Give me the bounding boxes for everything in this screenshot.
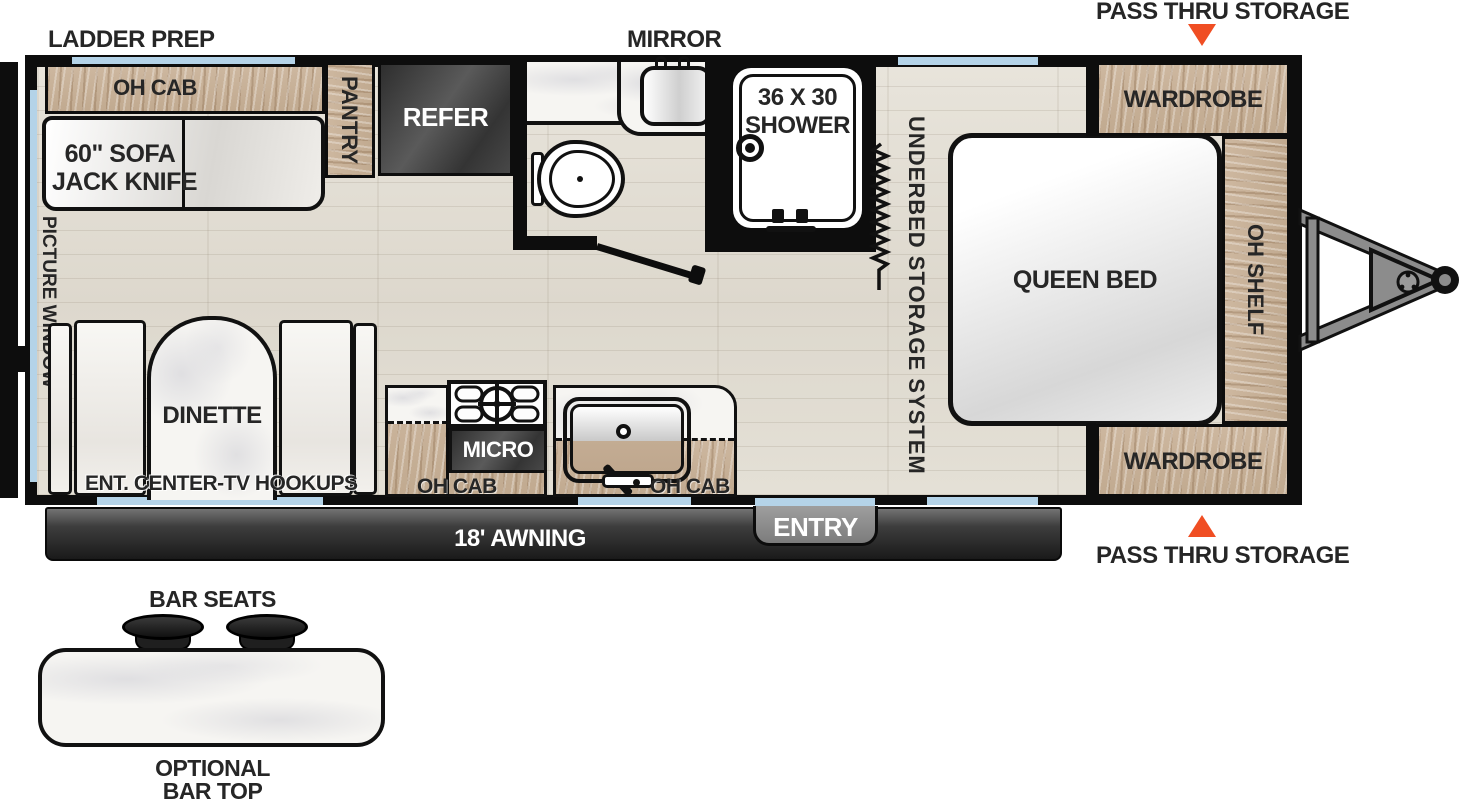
bar-stool-2 xyxy=(226,614,308,640)
pass-thru-arrow-up-icon xyxy=(1188,515,1216,537)
pass-thru-arrow-down-icon xyxy=(1188,24,1216,46)
mirror-label: MIRROR xyxy=(627,26,721,54)
pantry-label: PANTRY xyxy=(336,62,362,178)
dinette-bench-left-back xyxy=(48,323,72,495)
bar-stool-1 xyxy=(122,614,204,640)
oh-cab-kitchen-right-label: OH CAB xyxy=(650,475,730,499)
bathroom-sink xyxy=(640,66,712,126)
dinette-label: DINETTE xyxy=(147,402,277,430)
privacy-curtain-icon xyxy=(869,142,893,294)
kitchen-sink-basin xyxy=(570,404,684,474)
oh-cab-rear-label: OH CAB xyxy=(45,75,265,101)
floorplan-canvas: LADDER PREP MIRROR PASS THRU STORAGE PAS… xyxy=(0,0,1467,799)
refer-label: REFER xyxy=(378,102,513,133)
window-bottom-entry xyxy=(755,498,875,506)
wardrobe-top-label: WARDROBE xyxy=(1096,86,1290,114)
shower-label: 36 X 30 SHOWER xyxy=(733,84,862,139)
optional-bar-top-label-line2: BAR TOP xyxy=(163,778,263,799)
bathroom-wall-bottom xyxy=(513,236,597,250)
sofa-label-line1: 60" SOFA xyxy=(65,140,176,168)
oh-cab-kitchen-left-label: OH CAB xyxy=(417,475,497,499)
entry-label: ENTRY xyxy=(753,512,878,543)
kitchen-faucet-dot xyxy=(633,479,640,486)
sofa-label: 60" SOFA JACK KNIFE xyxy=(52,140,188,196)
toilet-flush-dot xyxy=(577,176,583,182)
micro-label: MICRO xyxy=(449,437,547,463)
bathroom-faucet-left xyxy=(655,56,667,69)
shower-label-line2: SHOWER xyxy=(745,112,850,139)
kitchen-sink-drain xyxy=(616,424,631,439)
trailer-hitch-icon xyxy=(1295,200,1467,360)
wardrobe-top-divider-wall xyxy=(1086,62,1096,136)
rear-bumper-mount xyxy=(16,346,26,372)
optional-bar-top xyxy=(38,648,385,747)
sofa-label-line2: JACK KNIFE xyxy=(52,168,197,196)
queen-bed-label: QUEEN BED xyxy=(948,266,1222,295)
ladder-prep-label: LADDER PREP xyxy=(48,26,215,54)
pass-thru-storage-top-label: PASS THRU STORAGE xyxy=(1096,0,1349,26)
oh-shelf-label: OH SHELF xyxy=(1242,136,1268,424)
bar-seats-label: BAR SEATS xyxy=(120,586,305,613)
rear-bumper xyxy=(0,62,18,498)
cooktop-icon xyxy=(447,380,547,428)
shower-head-dot xyxy=(745,143,755,153)
kitchen-counter-left-top xyxy=(388,388,448,424)
ent-center-tv-label: ENT. CENTER-TV HOOKUPS xyxy=(85,472,358,496)
kitchen-faucet-base xyxy=(602,474,654,488)
pass-thru-storage-bottom-label: PASS THRU STORAGE xyxy=(1096,542,1349,570)
window-bottom-bedroom xyxy=(927,497,1038,505)
picture-window-label-line1: PICTURE xyxy=(38,216,59,299)
underbed-storage-label: UNDERBED STORAGE SYSTEM xyxy=(903,116,929,438)
shower-control-bar xyxy=(766,226,816,232)
wardrobe-bottom-label: WARDROBE xyxy=(1096,448,1290,476)
window-top-bedroom xyxy=(898,57,1038,65)
shower-control-right xyxy=(796,209,808,223)
optional-bar-top-label: OPTIONAL BAR TOP xyxy=(120,757,305,799)
awning-label: 18' AWNING xyxy=(430,525,610,553)
wardrobe-bottom-divider-wall xyxy=(1086,423,1096,497)
bathroom-wall-left xyxy=(513,62,527,250)
dinette-bench-right-seat xyxy=(279,320,353,496)
dinette-bench-right-back xyxy=(353,323,377,495)
dinette-bench-left-seat xyxy=(74,320,146,496)
shower-label-line1: 36 X 30 xyxy=(758,84,837,111)
picture-window-label: PICTURE WINDOW xyxy=(36,216,59,324)
bathroom-faucet-right xyxy=(678,56,690,69)
shower-control-left xyxy=(772,209,784,223)
